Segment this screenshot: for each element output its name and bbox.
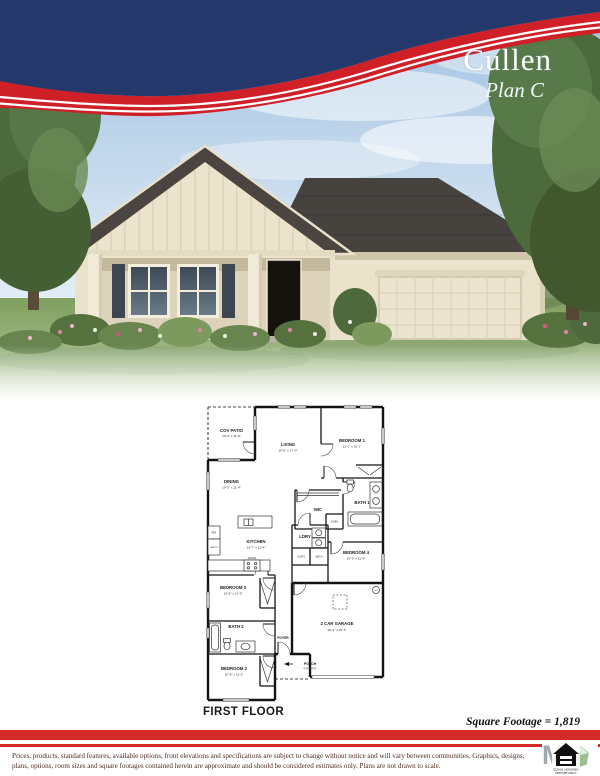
- plan-labels: COV PATIO 10'-0" x 11'-0" LIVING 16'-0" …: [210, 428, 378, 677]
- room-dims-bedroom2: 10'-8" x 11'-3": [225, 673, 244, 677]
- room-label-porch: PORCH: [304, 662, 317, 666]
- room-label-bedroom2: BEDROOM 2: [221, 666, 248, 671]
- room-dims-bedroom1: 13'-1" x 15'-1": [342, 445, 361, 449]
- room-label-garage: 2 CAR GARAGE: [321, 621, 354, 626]
- floor-plan: COV PATIO 10'-0" x 11'-0" LIVING 16'-0" …: [198, 402, 402, 716]
- footer-red-bar-thick: [0, 730, 600, 740]
- room-dims-porch: 4'-8" x 4'-0": [303, 667, 317, 671]
- room-dims-bedroom4: 10'-9" x 11'-9": [347, 557, 366, 561]
- garage-door: [379, 277, 521, 339]
- room-label-bath1: BATH 1: [354, 500, 370, 505]
- garage-door-opening: [312, 676, 374, 679]
- room-label-bedroom3: BEDROOM 3: [220, 585, 247, 590]
- square-footage: Square Footage = 1,819: [466, 716, 580, 728]
- label-water-heater: WH: [374, 590, 378, 592]
- disclaimer-line-2: plans, options, room sizes and square fo…: [12, 761, 441, 770]
- label-pantry: PANTRY: [210, 546, 219, 549]
- first-floor-title: FIRST FLOOR: [203, 706, 284, 718]
- plan-variant: Plan C: [485, 78, 544, 103]
- room-label-living: LIVING: [281, 442, 296, 447]
- room-label-dining: DINING: [224, 479, 240, 484]
- footer-red-bar-thin: [0, 744, 600, 747]
- label-ref: REF: [212, 532, 217, 535]
- disclaimer-line-1: Prices, products, standard features, ava…: [12, 751, 524, 760]
- disclaimer-text: Prices, products, standard features, ava…: [12, 751, 530, 772]
- equal-housing-text-2: OPPORTUNITY: [555, 771, 577, 775]
- room-dims-garage: 20'-1" x 20'-1": [327, 628, 346, 632]
- room-label-ldry: LDRY: [299, 534, 311, 539]
- plan-name: Cullen: [463, 42, 552, 78]
- room-dims-cov-patio: 10'-0" x 11'-0": [222, 434, 241, 438]
- closet-label-coats: COATS: [297, 556, 305, 559]
- flyer-page: Cullen Plan C: [0, 0, 600, 776]
- builder-logo: M EQUAL HOUSING OPPORTUNITY: [542, 740, 598, 775]
- room-dims-dining: 10'-0" x 11'-4": [222, 486, 241, 490]
- room-label-kitchen: KITCHEN: [246, 539, 265, 544]
- room-label-bedroom1: BEDROOM 1: [339, 438, 366, 443]
- closet-label-mech: MECH: [315, 556, 322, 559]
- label-range: RANGE: [248, 557, 257, 560]
- closet-label-linen: LINEN: [331, 521, 338, 524]
- equal-housing-logo: EQUAL HOUSING OPPORTUNITY: [552, 742, 580, 775]
- room-label-bedroom4: BEDROOM 4: [343, 550, 370, 555]
- room-label-bath2: BATH 2: [228, 624, 244, 629]
- room-dims-bedroom3: 10'-8" x 11'-3": [224, 592, 243, 596]
- attic-access: [333, 595, 347, 609]
- room-dims-living: 16'-0" x 17'-0": [278, 449, 297, 453]
- room-label-foyer: FOYER: [277, 636, 289, 640]
- room-label-cov-patio: COV PATIO: [220, 428, 244, 433]
- room-label-wic: WIC: [314, 507, 322, 512]
- porch-arrow: [284, 662, 293, 666]
- room-dims-kitchen: 13'-7" x 11'-4": [247, 546, 266, 550]
